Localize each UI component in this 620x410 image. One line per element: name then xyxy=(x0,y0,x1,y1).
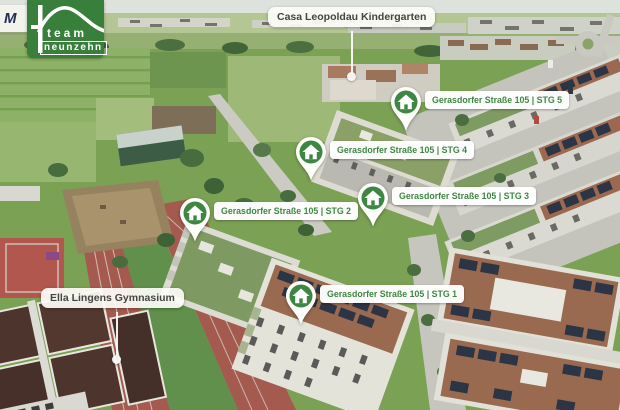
house-pin-icon xyxy=(285,280,317,326)
marker-label: Gerasdorfer Straße 105 | STG 2 xyxy=(214,202,358,220)
logo-neunzehn-text: neunzehn xyxy=(40,41,107,55)
aerial-map: M team neunzehn Casa Leopoldau Kindergar… xyxy=(0,0,620,410)
marker-label: Gerasdorfer Straße 105 | STG 1 xyxy=(320,285,464,303)
marker-label: Gerasdorfer Straße 105 | STG 3 xyxy=(392,187,536,205)
logo-team-text: team xyxy=(47,27,87,39)
kindergarten-dot xyxy=(347,72,356,81)
school-leader-line xyxy=(116,312,118,356)
brand-logo: team neunzehn xyxy=(27,0,104,58)
school-label: Ella Lingens Gymnasium xyxy=(41,288,184,308)
watermark-letter: M xyxy=(4,10,17,27)
house-pin-icon xyxy=(390,86,422,132)
marker-label: Gerasdorfer Straße 105 | STG 5 xyxy=(425,91,569,109)
kindergarten-leader-line xyxy=(351,31,353,74)
marker-stg1[interactable]: Gerasdorfer Straße 105 | STG 1 xyxy=(285,280,317,326)
marker-stg5[interactable]: Gerasdorfer Straße 105 | STG 5 xyxy=(390,86,422,132)
marker-stg2[interactable]: Gerasdorfer Straße 105 | STG 2 xyxy=(179,197,211,243)
house-pin-icon xyxy=(357,182,389,228)
marker-stg3[interactable]: Gerasdorfer Straße 105 | STG 3 xyxy=(357,182,389,228)
marker-stg4[interactable]: Gerasdorfer Straße 105 | STG 4 xyxy=(295,136,327,182)
marker-label: Gerasdorfer Straße 105 | STG 4 xyxy=(330,141,474,159)
kindergarten-label: Casa Leopoldau Kindergarten xyxy=(268,7,435,27)
house-pin-icon xyxy=(295,136,327,182)
school-dot xyxy=(112,355,121,364)
house-pin-icon xyxy=(179,197,211,243)
